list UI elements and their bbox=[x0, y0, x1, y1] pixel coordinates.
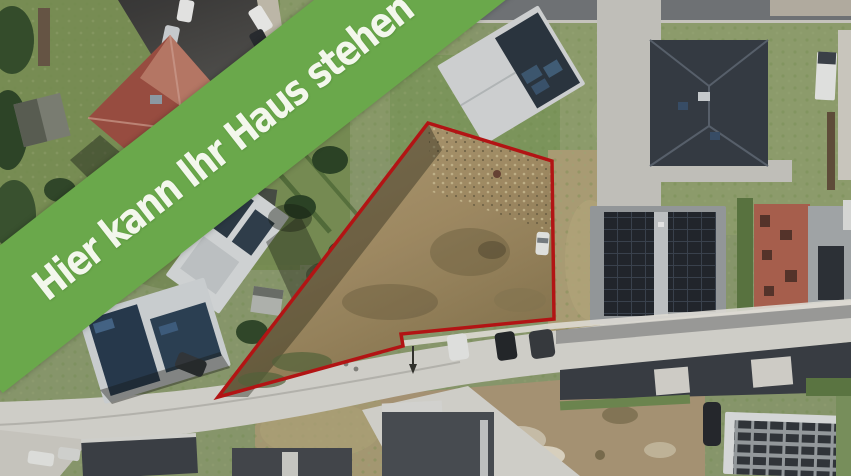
aerial-photo: Hier kann Ihr Haus stehen bbox=[0, 0, 851, 476]
